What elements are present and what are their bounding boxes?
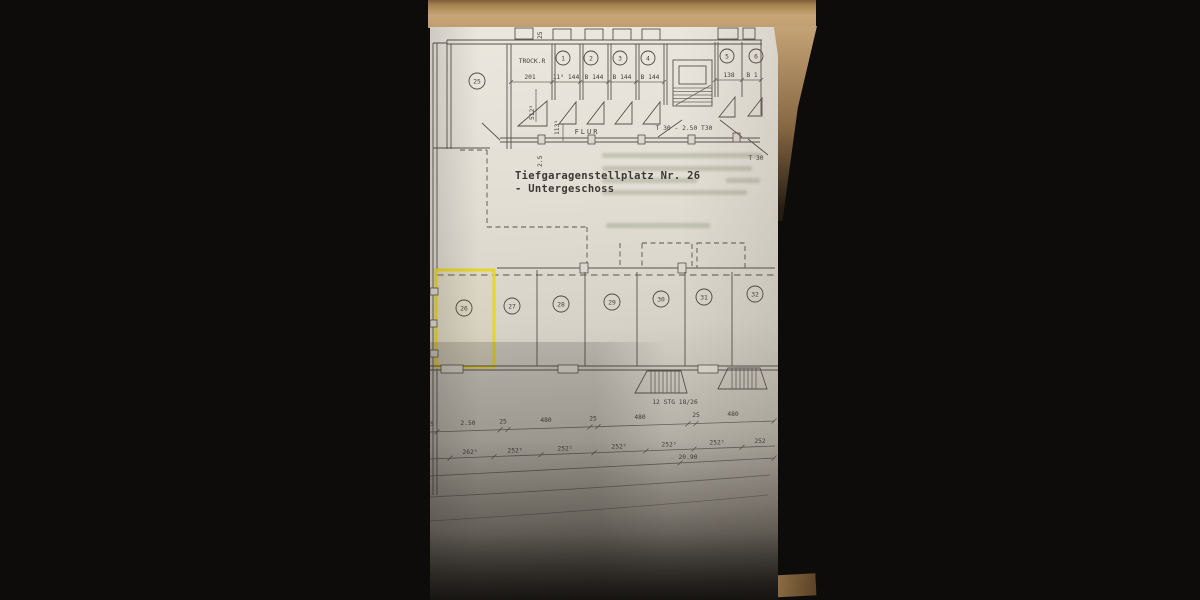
stair-hatch-right	[718, 368, 767, 389]
stall-number-26: 26	[460, 306, 468, 313]
room-number-3: 3	[618, 56, 622, 63]
room-number-5: 5	[725, 54, 729, 61]
dim-cell3: B 144	[613, 74, 632, 81]
stall-number-32: 32	[751, 292, 759, 299]
parking-stalls: 26 27 28 29 30 31 32	[436, 263, 775, 367]
dim-l1: 252⁵	[507, 447, 522, 454]
floorplan-paper: 25 1 2 3 4 5 6 TROCK.R 201 11⁵ 144	[430, 27, 778, 600]
stall-number-28: 28	[557, 302, 565, 309]
dim-u0: 5	[430, 421, 434, 428]
dim-512-vertical: 512⁵	[529, 105, 536, 120]
room-number-25: 25	[473, 79, 481, 86]
photo-scene: 25 1 2 3 4 5 6 TROCK.R 201 11⁵ 144	[0, 0, 1200, 600]
dim-total-2090: 20.90	[679, 454, 698, 461]
stall-number-30: 30	[657, 297, 665, 304]
dim-cell1: 11⁵ 144	[553, 74, 580, 81]
dim-u5: 480	[634, 414, 646, 421]
dim-201: 201	[524, 74, 536, 81]
dashed-boundary	[460, 150, 745, 268]
dim-u7: 480	[727, 411, 739, 418]
stairs-label: 12 STG 18/26	[652, 399, 698, 406]
dim-u6: 25	[692, 412, 700, 419]
room-number-4: 4	[646, 56, 650, 63]
dimension-total: 20.90	[430, 454, 777, 521]
dim-l5: 252⁵	[709, 440, 724, 447]
stall-number-31: 31	[700, 295, 708, 302]
plan-title-line1: Tiefgaragenstellplatz Nr. 26	[515, 170, 700, 183]
staircase-top	[673, 60, 712, 106]
room-number-2: 2	[589, 56, 593, 63]
dimension-chain-lower: 262⁵ 252⁵ 252⁵ 252⁵ 252⁵ 252⁵ 252	[430, 438, 775, 461]
stall-number-27: 27	[508, 304, 516, 311]
plan-title: Tiefgaragenstellplatz Nr. 26 - Untergesc…	[515, 170, 700, 196]
dim-l4: 252⁵	[661, 442, 676, 449]
wooden-table-top-strip	[428, 0, 816, 28]
floorplan-drawing: 25 1 2 3 4 5 6 TROCK.R 201 11⁵ 144	[430, 27, 780, 527]
dim-u4: 25	[589, 416, 597, 423]
flur-label: FLUR	[575, 128, 600, 136]
window-symbols	[515, 28, 755, 40]
room-number-circles: 25 1 2 3 4 5 6	[469, 49, 763, 89]
dim-b1: B 1	[746, 72, 758, 79]
highlighted-stall-26	[436, 270, 494, 367]
t30-right-label: T 30	[748, 155, 763, 162]
dim-l0: 262⁵	[462, 449, 477, 456]
plan-title-line2: - Untergeschoss	[515, 183, 700, 196]
dim-113-vertical: 113⁵	[554, 120, 561, 135]
dim-u3: 480	[540, 417, 552, 424]
dim-138: 138	[723, 72, 735, 79]
dimension-chain-upper: 5 2.50 25 480 25 480 25 480	[430, 411, 777, 434]
dim-cell2: B 144	[585, 74, 604, 81]
room-number-1: 1	[561, 56, 565, 63]
dim-2-5-vertical: 2.5	[537, 155, 544, 167]
dim-l6: 252	[754, 438, 766, 445]
dim-u2: 25	[499, 419, 507, 426]
room-number-6: 6	[754, 54, 758, 61]
dim-cell4: B 144	[641, 74, 660, 81]
t30-label: T 30 - 2.50 T30	[656, 125, 713, 132]
stair-hatch-left	[635, 371, 687, 393]
dim-l2: 252⁵	[557, 445, 572, 452]
dim-u1: 2.50	[460, 420, 475, 427]
dim-l3: 252⁵	[611, 443, 626, 450]
trock-room-label: TROCK.R	[519, 58, 546, 65]
corridor: FLUR T 30 - 2.50 T30 T 30 113⁵ 2.5	[482, 120, 768, 167]
dim-25-vertical: 25	[537, 31, 544, 39]
stall-number-29: 29	[608, 300, 616, 307]
